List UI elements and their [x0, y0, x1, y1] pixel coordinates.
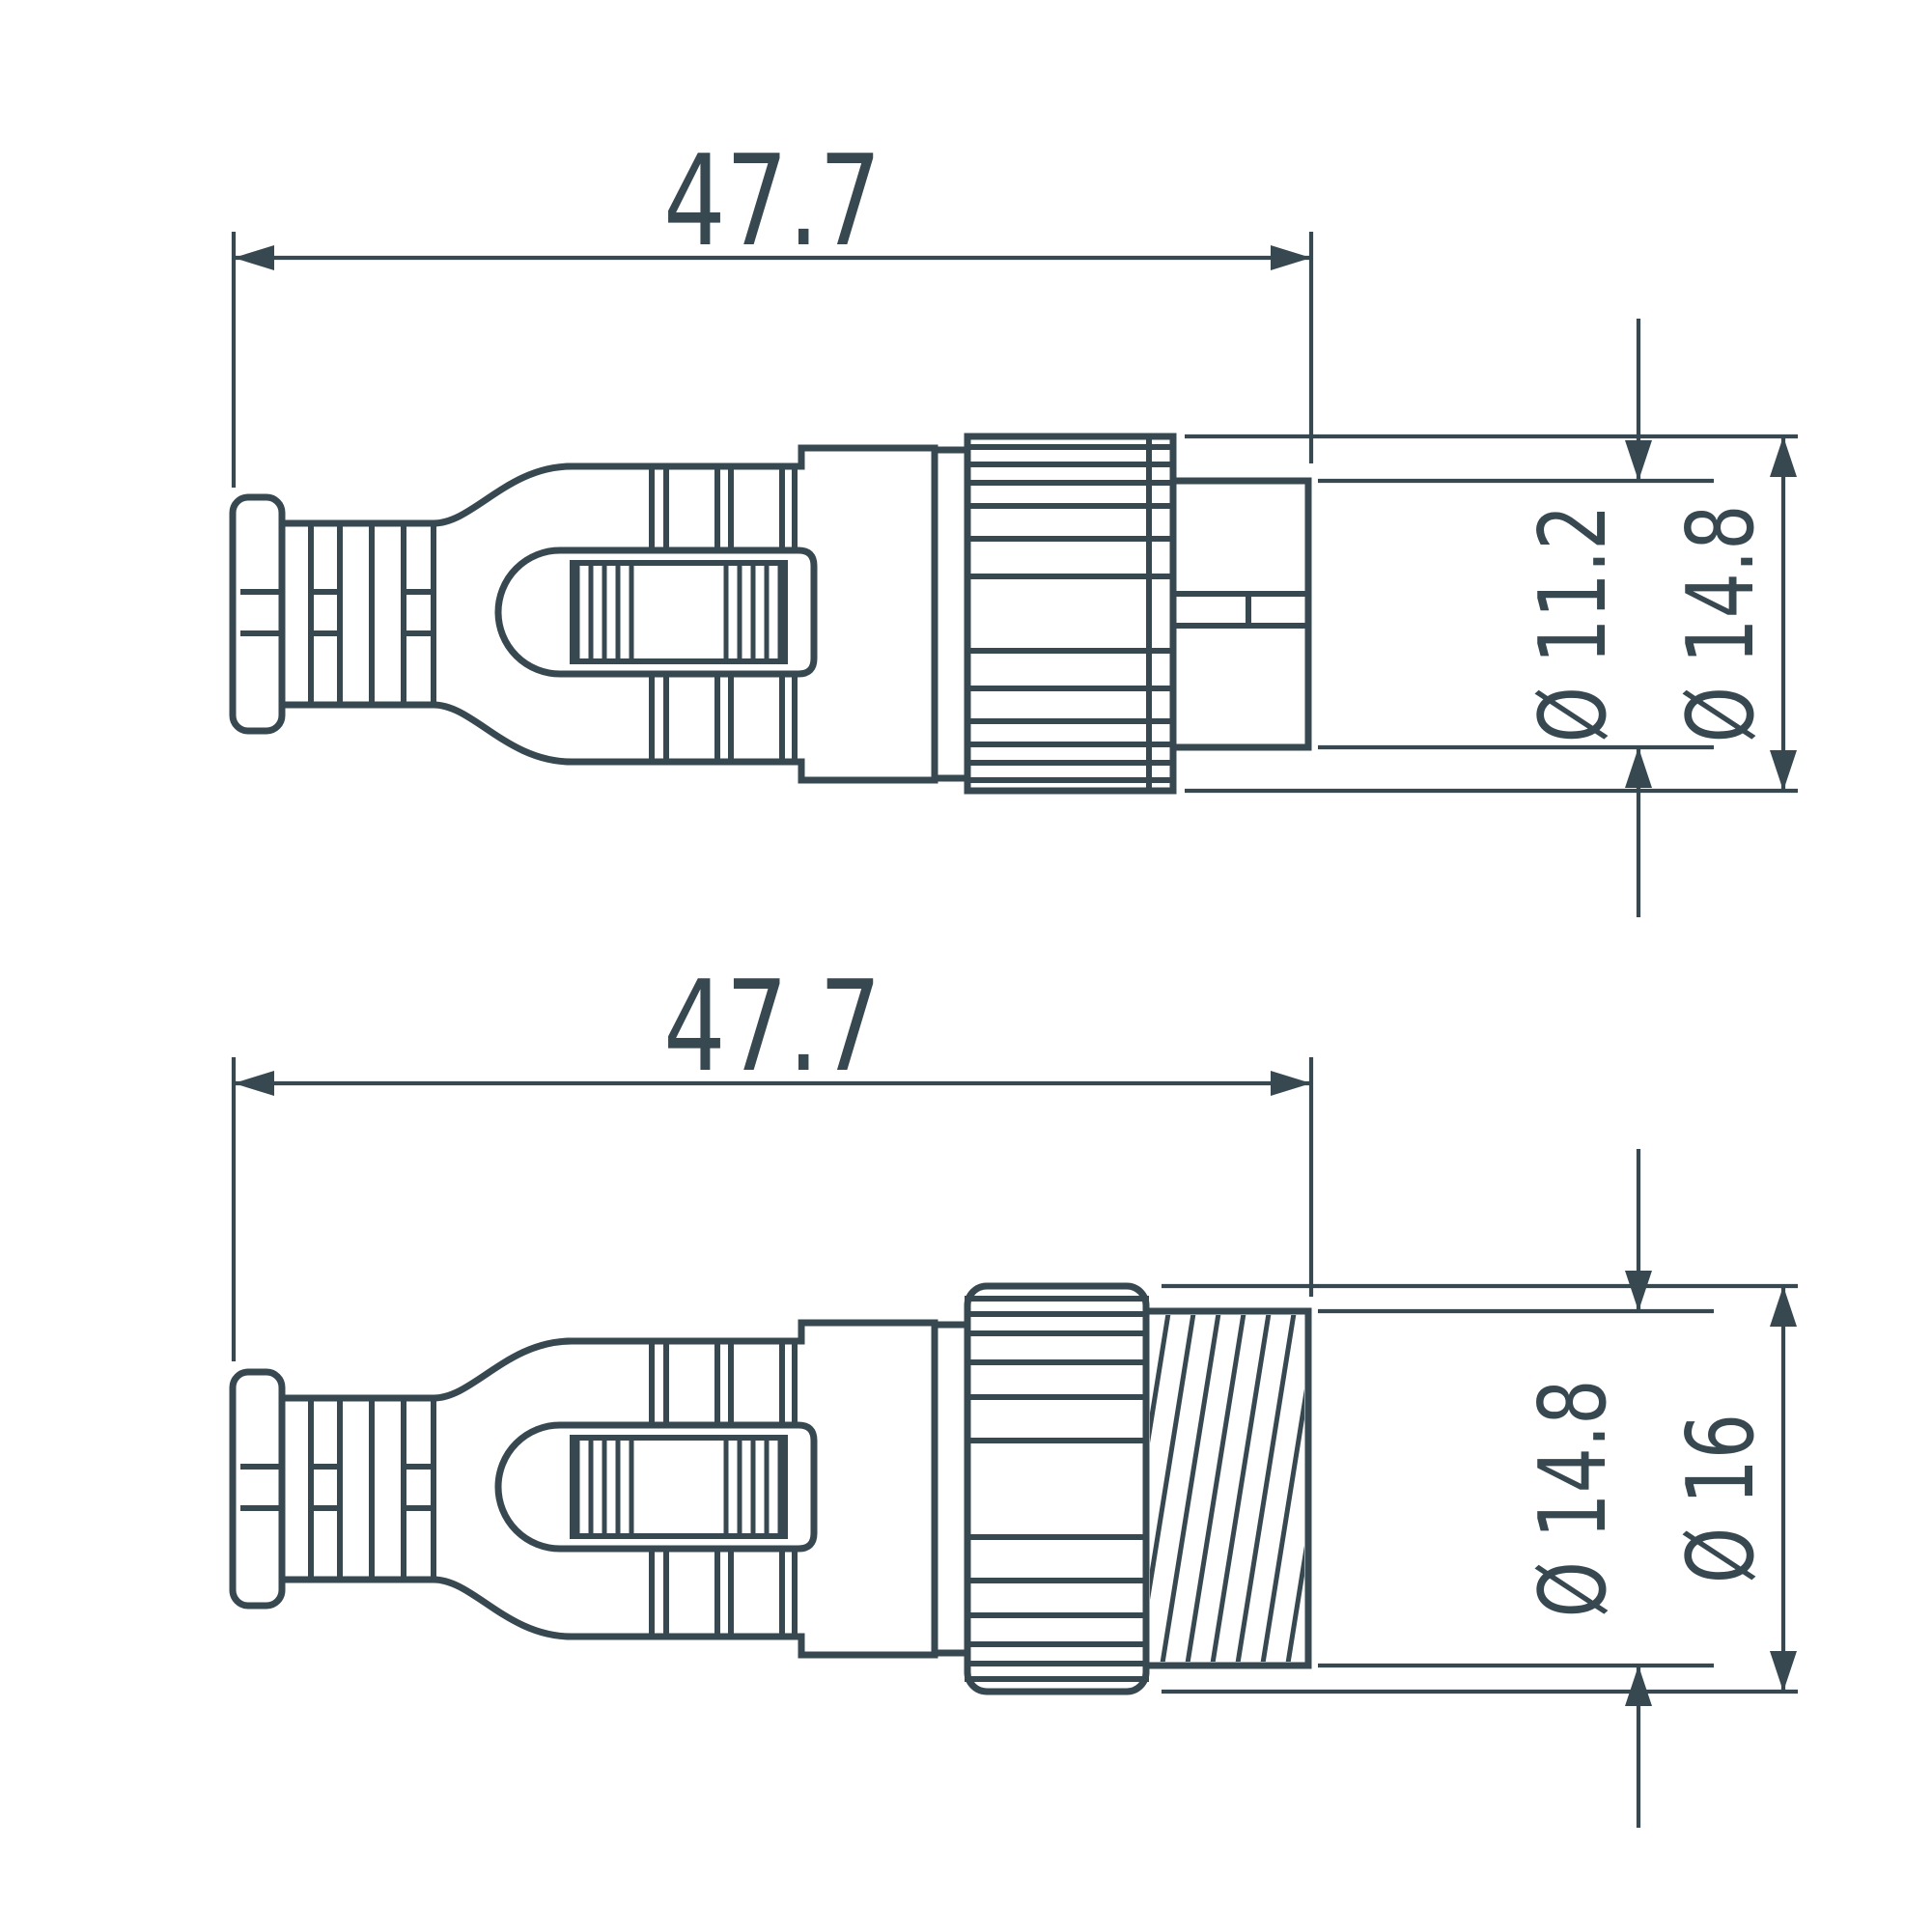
- female-length-extension-lines: [234, 1057, 1311, 1361]
- male-cable-cap: [233, 497, 282, 731]
- male-step-flange: [935, 450, 967, 778]
- male-nut-knurl-bands: [967, 447, 1173, 780]
- tip-dia-arrow-top: [1625, 440, 1652, 481]
- female-length-label: 47.7: [663, 955, 882, 1101]
- female-length-arrow-left: [234, 1071, 274, 1096]
- nut16-dia-arrow-top: [1770, 1286, 1797, 1327]
- connector-technical-drawing: 47.7 Ø 11.2 Ø 14.8: [0, 0, 1932, 1932]
- male-length-label: 47.7: [663, 129, 882, 275]
- male-coupling-nut: [967, 436, 1173, 791]
- female-cable-cap: [233, 1372, 282, 1606]
- nut16-dia-arrow-bottom: [1770, 1651, 1797, 1692]
- male-body-transition: [434, 466, 572, 762]
- thread-dia-label: Ø 14.8: [1521, 1380, 1627, 1618]
- male-dim-tip-diameter: Ø 11.2: [1318, 319, 1714, 917]
- female-nut-knurl-bands: [967, 1299, 1146, 1679]
- tip-dia-label: Ø 11.2: [1521, 505, 1627, 743]
- tip-dia-extension-lines: [1318, 481, 1714, 747]
- male-plug-tip-groove: [1173, 594, 1308, 626]
- male-boot-edges: [282, 523, 434, 705]
- thread-dia-arrow-bottom: [1625, 1666, 1652, 1706]
- nut-dia-arrow-bottom: [1770, 750, 1797, 791]
- nut16-dia-label: Ø 16: [1668, 1414, 1775, 1583]
- female-dim-nut-outer-diameter: Ø 16: [1162, 1286, 1798, 1692]
- male-boot-ribs: [311, 523, 434, 705]
- thread-dia-extension-lines: [1318, 1311, 1714, 1666]
- male-length-arrow-left: [234, 245, 274, 270]
- female-length-arrow-right: [1271, 1071, 1311, 1096]
- male-length-arrow-right: [1271, 245, 1311, 270]
- nut-dia-label: Ø 14.8: [1668, 505, 1775, 743]
- female-latch-grip-ridges: [577, 1441, 780, 1533]
- female-body-transition: [434, 1341, 572, 1637]
- male-latch-grip-ridges: [577, 566, 780, 658]
- female-boot-ribs: [311, 1398, 434, 1580]
- nut-dia-arrow-top: [1770, 436, 1797, 477]
- female-dim-overall-length: 47.7: [234, 955, 1311, 1361]
- female-connector-view: [233, 1286, 1346, 1692]
- female-body-ring-ribs: [652, 1341, 795, 1637]
- drawing-canvas: 47.7 Ø 11.2 Ø 14.8: [0, 0, 1932, 1932]
- male-plug-tip: [1173, 481, 1308, 747]
- female-coupling-nut: [967, 1286, 1146, 1692]
- tip-dia-arrow-bottom: [1625, 747, 1652, 788]
- female-dim-thread-diameter: Ø 14.8: [1318, 1149, 1714, 1828]
- female-boot-edges: [282, 1398, 434, 1580]
- male-connector-view: [233, 436, 1308, 791]
- male-body-ring-ribs: [652, 466, 795, 762]
- thread-dia-arrow-top: [1625, 1271, 1652, 1311]
- male-dim-nut-diameter: Ø 14.8: [1185, 436, 1798, 791]
- female-step-flange: [935, 1325, 967, 1653]
